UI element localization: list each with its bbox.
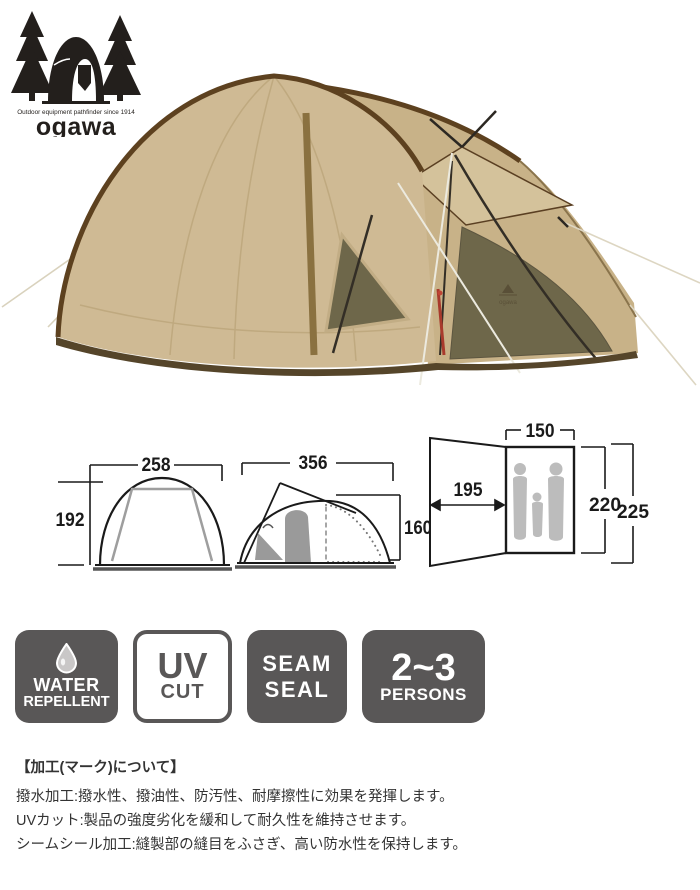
note-seam-seal: シームシール加工:縫製部の縫目をふさぎ、高い防水性を保持します。 bbox=[16, 833, 676, 857]
side-width-label: 356 bbox=[299, 453, 328, 474]
processing-notes: 【加工(マーク)について】 撥水加工:撥水性、撥油性、防汚性、耐摩擦性に効果を発… bbox=[16, 756, 676, 857]
diagram-floor-plan: 150 195 220 225 bbox=[423, 416, 700, 586]
badge-line1: UV bbox=[157, 650, 207, 682]
badge-line1: 2~3 bbox=[391, 650, 455, 686]
vestibule-depth-label: 195 bbox=[454, 480, 483, 501]
badge-water-repellent: WATER REPELLENT bbox=[15, 630, 118, 723]
floor-width-label: 150 bbox=[526, 421, 555, 442]
badge-seam-seal: SEAM SEAL bbox=[247, 630, 347, 723]
tent-product-photo: ogawa bbox=[0, 55, 700, 405]
side-door-shape bbox=[285, 510, 311, 563]
water-drop-icon bbox=[54, 643, 79, 674]
diagram-side-view: 356 160 bbox=[232, 425, 444, 585]
badge-line1: WATER bbox=[33, 676, 99, 695]
note-water-repellent: 撥水加工:撥水性、撥油性、防汚性、耐摩擦性に効果を発揮します。 bbox=[16, 785, 676, 809]
svg-text:ogawa: ogawa bbox=[499, 300, 517, 306]
note-uv-cut: UVカット:製品の強度劣化を緩和して耐久性を維持させます。 bbox=[16, 809, 676, 833]
badge-line2: CUT bbox=[160, 682, 204, 703]
front-height-label: 192 bbox=[56, 510, 85, 531]
badge-persons: 2~3 PERSONS bbox=[362, 630, 485, 723]
notes-heading: 【加工(マーク)について】 bbox=[16, 756, 676, 777]
badge-uv-cut: UV CUT bbox=[133, 630, 232, 723]
diagram-front-view: 258 192 bbox=[40, 425, 245, 585]
total-depth-label: 225 bbox=[617, 502, 649, 523]
front-width-label: 258 bbox=[142, 455, 171, 476]
badge-line2: PERSONS bbox=[380, 686, 467, 704]
front-outline bbox=[100, 478, 224, 565]
badge-line2: SEAL bbox=[265, 677, 330, 703]
badge-line1: SEAM bbox=[262, 651, 332, 677]
feature-badges: WATER REPELLENT UV CUT SEAM SEAL 2~3 PER… bbox=[15, 630, 485, 723]
badge-line2: REPELLENT bbox=[23, 695, 109, 710]
